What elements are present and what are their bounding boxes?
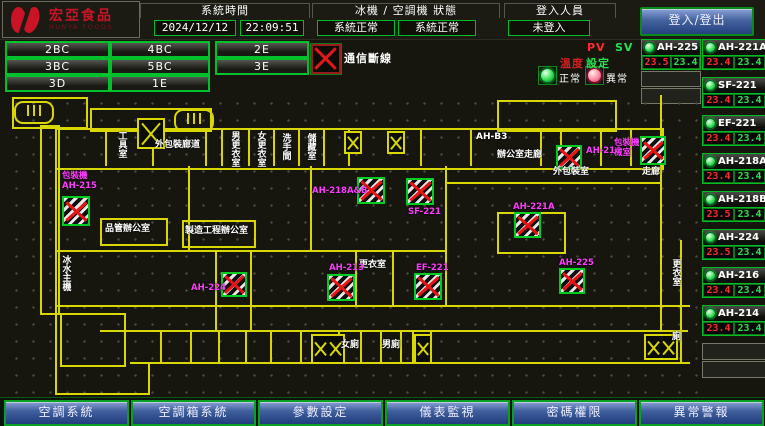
alarm-box-icon[interactable] bbox=[559, 268, 585, 294]
pv-value: 23.4 bbox=[703, 322, 734, 335]
pv-header: PV bbox=[587, 41, 606, 54]
room-label: 品管辦公室 bbox=[105, 225, 150, 234]
wall bbox=[221, 128, 223, 166]
device-status-led-icon bbox=[705, 80, 716, 91]
room-label: 走廊 bbox=[642, 168, 660, 177]
system-time-label: 系統時間 bbox=[140, 3, 310, 18]
alarm-box-icon[interactable] bbox=[640, 136, 666, 165]
device-status-led-icon bbox=[705, 118, 716, 129]
wall bbox=[680, 240, 682, 362]
empty-device-slot bbox=[702, 361, 765, 378]
legend-abnormal-label: 異常 bbox=[606, 70, 628, 85]
wall bbox=[105, 128, 107, 166]
room-label: 辦公室走廊 bbox=[497, 151, 542, 160]
floor-button-5BC[interactable]: 5BC bbox=[110, 58, 210, 75]
wall bbox=[660, 95, 662, 330]
pv-value: 23.5 bbox=[703, 246, 734, 259]
wall bbox=[245, 330, 247, 362]
equipment-label: AH-225 bbox=[559, 259, 594, 269]
wall bbox=[298, 128, 300, 166]
floor-button-1E[interactable]: 1E bbox=[110, 75, 210, 92]
alarm-box-icon[interactable] bbox=[406, 178, 434, 205]
pv-value: 23.4 bbox=[703, 132, 734, 145]
device-AH-225-values: 23.523.4 bbox=[641, 55, 701, 70]
machine-status-panel: 冰機 / 空調機 狀態 系統正常 系統正常 bbox=[312, 1, 500, 37]
room-label: 洗手間 bbox=[280, 133, 289, 160]
room-label: AH-B3 bbox=[476, 133, 507, 142]
wall bbox=[270, 330, 272, 362]
alarm-box-icon[interactable] bbox=[62, 196, 90, 226]
equipment-label: AH-213 bbox=[329, 264, 364, 274]
elevator-box-icon bbox=[344, 131, 362, 154]
header-bar: 宏亞食品 HUNYA FOODS 系統時間 2024/12/12 22:09:5… bbox=[0, 0, 765, 40]
sv-header: SV bbox=[615, 41, 633, 54]
floor-button-2BC[interactable]: 2BC bbox=[5, 41, 110, 58]
stairs-icon bbox=[174, 109, 214, 132]
device-status-led-icon bbox=[644, 42, 655, 53]
wall bbox=[148, 362, 150, 393]
room-label: 製造工程辦公室 bbox=[185, 227, 248, 236]
elevator-box-icon bbox=[414, 334, 432, 364]
room-label: 男更衣室 bbox=[229, 131, 238, 167]
device-AH-218A-button[interactable]: AH-218A bbox=[702, 153, 765, 170]
bottom-nav-button-3[interactable]: 參數設定 bbox=[258, 400, 383, 426]
empty-device-slot bbox=[641, 71, 701, 87]
chiller-status-value: 系統正常 bbox=[317, 20, 395, 36]
comm-fail-icon bbox=[311, 44, 341, 74]
wall bbox=[190, 330, 192, 362]
sv-value: 23.4 bbox=[734, 208, 765, 221]
equipment-label: SF-221 bbox=[408, 208, 441, 218]
wall bbox=[250, 250, 252, 330]
room-label: 更衣室 bbox=[670, 259, 679, 286]
alarm-box-icon[interactable] bbox=[327, 274, 355, 301]
hunya-logo-icon bbox=[11, 7, 45, 33]
company-logo: 宏亞食品 HUNYA FOODS bbox=[2, 1, 140, 38]
room-label: 儲藏室 bbox=[305, 133, 314, 160]
wall bbox=[420, 128, 422, 166]
bottom-nav-button-6[interactable]: 異常警報 bbox=[639, 400, 764, 426]
pv-value: 23.5 bbox=[703, 208, 734, 221]
wall bbox=[55, 393, 150, 395]
brand-name: 宏亞食品 bbox=[49, 9, 113, 23]
device-AH-214-button[interactable]: AH-214 bbox=[702, 305, 765, 322]
sv-value: 23.4 bbox=[734, 322, 765, 335]
sv-value: 23.4 bbox=[734, 284, 765, 297]
room-label: 外包裝室 bbox=[553, 168, 589, 177]
wall bbox=[392, 252, 394, 305]
brand-subtitle: HUNYA FOODS bbox=[49, 23, 113, 31]
floor-button-3E[interactable]: 3E bbox=[215, 58, 309, 75]
setting-prefix-label: 溫度 bbox=[560, 55, 584, 71]
alarm-box-icon[interactable] bbox=[414, 273, 442, 300]
wall bbox=[188, 166, 190, 250]
floor-button-3BC[interactable]: 3BC bbox=[5, 58, 110, 75]
device-AH-225-button[interactable]: AH-225 bbox=[641, 39, 701, 56]
alarm-box-icon[interactable] bbox=[514, 212, 541, 238]
hmi-screen: 宏亞食品 HUNYA FOODS 系統時間 2024/12/12 22:09:5… bbox=[0, 0, 765, 426]
machine-status-label: 冰機 / 空調機 狀態 bbox=[312, 3, 500, 18]
equipment-label: AH-218A&B bbox=[312, 187, 367, 197]
wall bbox=[55, 166, 57, 394]
pv-value: 23.4 bbox=[703, 284, 734, 297]
elevator-box-icon bbox=[311, 334, 345, 364]
setting-suffix-label: 設定 bbox=[586, 55, 610, 71]
floor-button-2E[interactable]: 2E bbox=[215, 41, 309, 58]
wall bbox=[100, 330, 688, 332]
wall bbox=[218, 330, 220, 362]
pv-value: 23.4 bbox=[703, 56, 734, 69]
device-AH-216-values: 23.423.4 bbox=[702, 283, 765, 298]
empty-device-slot bbox=[702, 343, 765, 360]
wall bbox=[310, 166, 312, 250]
device-AH-224-values: 23.523.4 bbox=[702, 245, 765, 260]
system-date-value: 2024/12/12 bbox=[154, 20, 236, 36]
login-status-value: 未登入 bbox=[508, 20, 590, 36]
wall bbox=[360, 330, 362, 362]
wall bbox=[205, 128, 207, 166]
device-status-led-icon bbox=[705, 232, 716, 243]
room-label: 女廁 bbox=[341, 341, 359, 350]
pv-value: 23.5 bbox=[642, 56, 671, 69]
wall bbox=[40, 125, 60, 315]
floor-button-4BC[interactable]: 4BC bbox=[110, 41, 210, 58]
wall bbox=[355, 252, 357, 305]
sv-value: 23.4 bbox=[734, 132, 765, 145]
wall bbox=[470, 128, 472, 166]
pv-value: 23.4 bbox=[703, 94, 734, 107]
bottom-nav-button-1[interactable]: 空調系統 bbox=[4, 400, 129, 426]
pv-value: 23.4 bbox=[703, 170, 734, 183]
comm-fail-label: 通信斷線 bbox=[344, 50, 392, 66]
elevator-box-icon bbox=[387, 131, 405, 154]
equipment-label: AH-224 bbox=[191, 284, 226, 294]
stairs-icon bbox=[14, 101, 54, 124]
device-status-led-icon bbox=[705, 42, 716, 53]
device-AH-218B-button[interactable]: AH-218B bbox=[702, 191, 765, 208]
wall bbox=[300, 330, 302, 362]
room-label: 女更衣室 bbox=[255, 131, 264, 167]
bottom-nav-button-5[interactable]: 密碼權限 bbox=[512, 400, 637, 426]
sv-value: 23.4 bbox=[734, 56, 765, 69]
equipment-label: 包裝機AH-215 bbox=[62, 172, 97, 192]
wall bbox=[273, 128, 275, 166]
ac-status-value: 系統正常 bbox=[398, 20, 476, 36]
equipment-label: AH-221A bbox=[513, 203, 555, 213]
device-AH-216-button[interactable]: AH-216 bbox=[702, 267, 765, 284]
device-EF-221-button[interactable]: EF-221 bbox=[702, 115, 765, 132]
device-AH-221A-values: 23.423.4 bbox=[702, 55, 765, 70]
bottom-nav-button-4[interactable]: 儀表監視 bbox=[385, 400, 510, 426]
room-label: 廁 bbox=[672, 333, 681, 342]
equipment-label: 包裝機械室 bbox=[614, 139, 640, 159]
device-status-led-icon bbox=[705, 308, 716, 319]
device-SF-221-button[interactable]: SF-221 bbox=[702, 77, 765, 94]
wall bbox=[400, 330, 402, 362]
bottom-nav-button-2[interactable]: 空調箱系統 bbox=[131, 400, 256, 426]
device-AH-214-values: 23.423.4 bbox=[702, 321, 765, 336]
sv-value: 23.4 bbox=[734, 246, 765, 259]
room-label: 男廁 bbox=[382, 341, 400, 350]
device-status-led-icon bbox=[705, 270, 716, 281]
login-logout-button[interactable]: 登入/登出 bbox=[640, 7, 754, 36]
device-AH-224-button[interactable]: AH-224 bbox=[702, 229, 765, 246]
bottom-nav: 空調系統空調箱系統參數設定儀表監視密碼權限異常警報 bbox=[0, 397, 765, 426]
sv-value: 23.4 bbox=[734, 170, 765, 183]
legend-normal-label: 正常 bbox=[559, 70, 581, 85]
wall bbox=[323, 128, 325, 166]
wall bbox=[60, 313, 126, 367]
device-SF-221-values: 23.423.4 bbox=[702, 93, 765, 108]
system-clock-value: 22:09:51 bbox=[240, 20, 304, 36]
sv-value: 23.4 bbox=[734, 94, 765, 107]
wall bbox=[445, 182, 660, 184]
wall bbox=[248, 128, 250, 166]
room-label: 工具室 bbox=[116, 131, 125, 158]
room-label: 冰水主機 bbox=[60, 255, 69, 291]
system-time-panel: 系統時間 2024/12/12 22:09:51 bbox=[140, 1, 310, 37]
equipment-label: EF-221 bbox=[416, 264, 449, 274]
login-panel: 登入人員 未登入 bbox=[504, 1, 616, 37]
floor-button-3D[interactable]: 3D bbox=[5, 75, 110, 92]
device-AH-221A-button[interactable]: AH-221A bbox=[702, 39, 765, 56]
device-status-led-icon bbox=[705, 156, 716, 167]
wall bbox=[55, 305, 690, 307]
sv-value: 23.4 bbox=[671, 56, 700, 69]
wall bbox=[160, 330, 162, 362]
floor-plan: 工具室外包裝廊道男更衣室女更衣室洗手間儲藏室AH-B3辦公室走廊品管辦公室製造工… bbox=[8, 95, 700, 395]
wall bbox=[445, 166, 447, 305]
wall bbox=[130, 362, 690, 364]
alarm-box-icon[interactable] bbox=[556, 145, 582, 169]
login-user-label: 登入人員 bbox=[504, 3, 616, 18]
device-AH-218A-values: 23.423.4 bbox=[702, 169, 765, 184]
room-label: 外包裝廊道 bbox=[155, 141, 200, 150]
normal-led-icon bbox=[538, 66, 557, 85]
device-AH-218B-values: 23.523.4 bbox=[702, 207, 765, 222]
device-EF-221-values: 23.423.4 bbox=[702, 131, 765, 146]
device-status-led-icon bbox=[705, 194, 716, 205]
